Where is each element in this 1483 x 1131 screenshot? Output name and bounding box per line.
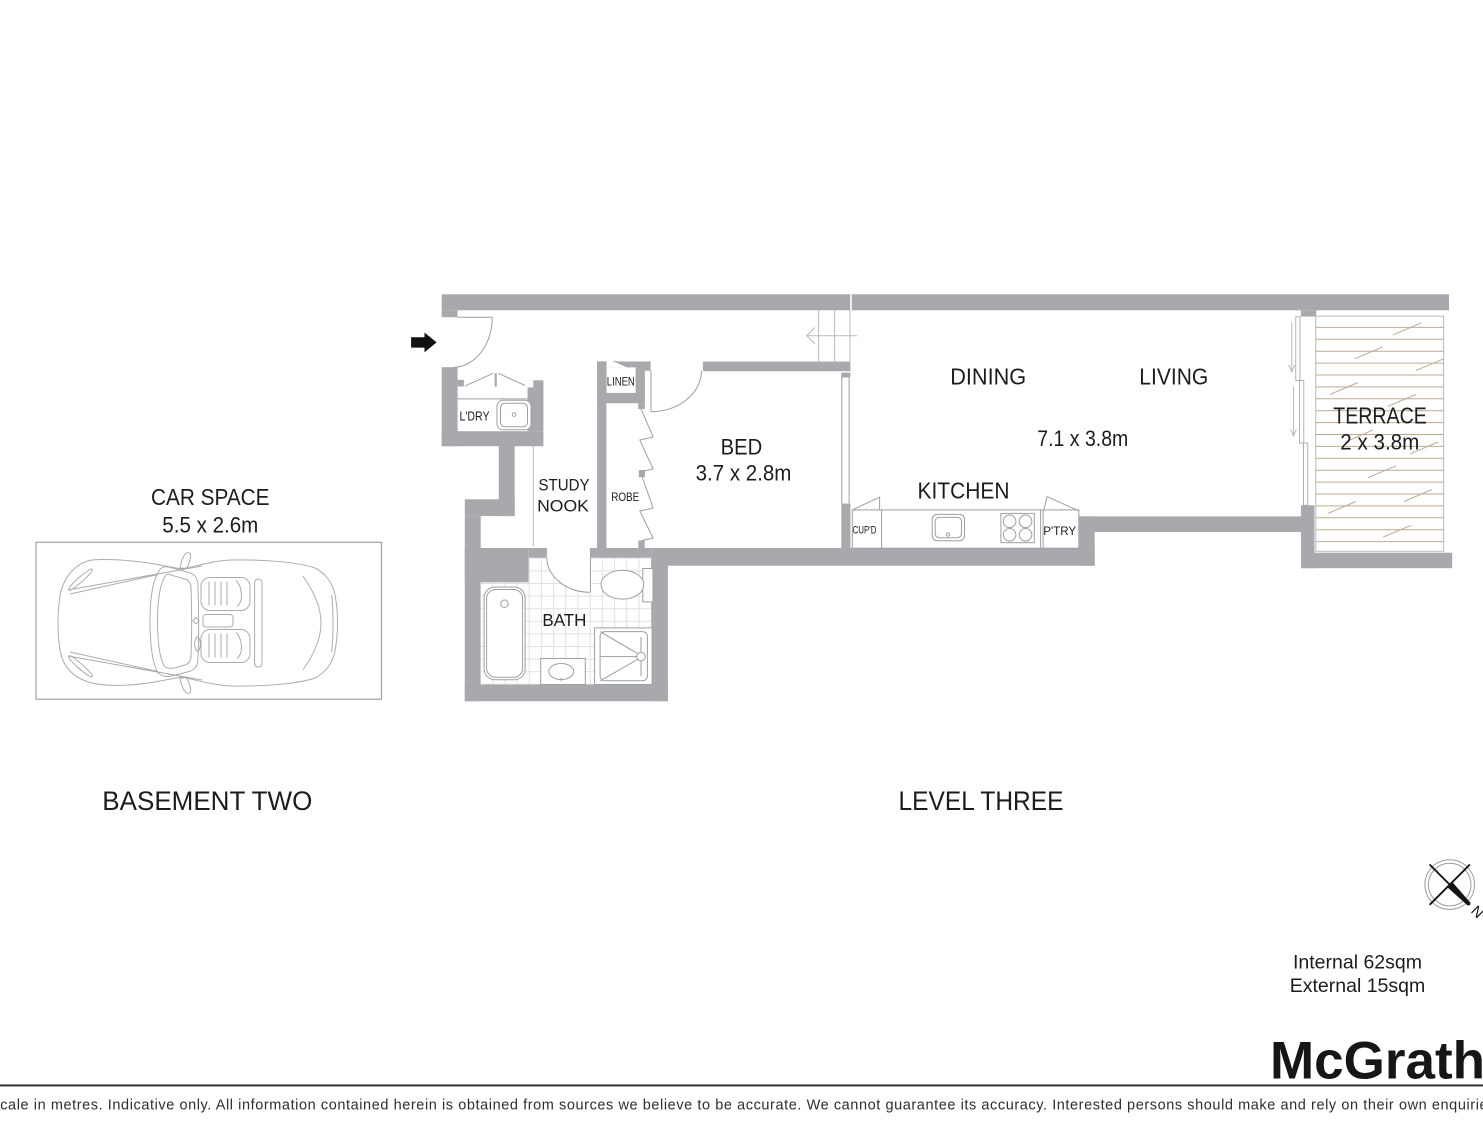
svg-text:7.1 x 3.8m: 7.1 x 3.8m	[1037, 426, 1128, 451]
svg-text:NOOK: NOOK	[537, 498, 589, 516]
svg-text:CUP'D: CUP'D	[853, 524, 877, 536]
svg-text:LINEN: LINEN	[607, 375, 635, 389]
svg-text:LEVEL THREE: LEVEL THREE	[899, 786, 1064, 816]
svg-text:External 15sqm: External 15sqm	[1290, 975, 1425, 997]
svg-text:L'DRY: L'DRY	[460, 409, 490, 424]
svg-text:2 x 3.8m: 2 x 3.8m	[1340, 430, 1419, 455]
svg-text:BED: BED	[721, 435, 763, 460]
svg-text:Scale in metres. Indicative on: Scale in metres. Indicative only. All in…	[0, 1098, 1483, 1114]
svg-text:Internal 62sqm: Internal 62sqm	[1293, 952, 1422, 974]
svg-text:CAR SPACE: CAR SPACE	[151, 484, 270, 510]
svg-text:3.7 x 2.8m: 3.7 x 2.8m	[696, 461, 792, 486]
svg-text:TERRACE: TERRACE	[1333, 402, 1427, 428]
svg-text:DINING: DINING	[950, 363, 1026, 389]
svg-text:STUDY: STUDY	[539, 477, 590, 495]
svg-text:McGrath: McGrath	[1270, 1032, 1483, 1091]
svg-text:LIVING: LIVING	[1139, 363, 1208, 389]
svg-text:P'TRY: P'TRY	[1043, 524, 1076, 538]
svg-text:ROBE: ROBE	[611, 492, 639, 504]
svg-text:BATH: BATH	[542, 610, 586, 630]
svg-text:KITCHEN: KITCHEN	[918, 478, 1010, 504]
svg-text:BASEMENT TWO: BASEMENT TWO	[102, 786, 312, 816]
svg-text:5.5 x 2.6m: 5.5 x 2.6m	[162, 512, 258, 537]
